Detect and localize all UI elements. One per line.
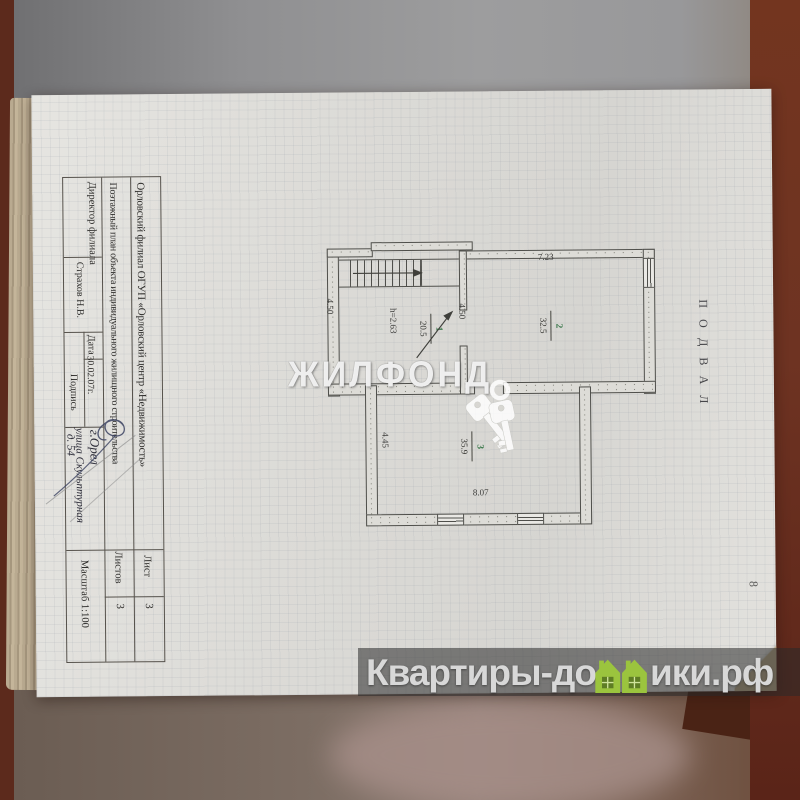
dim-room3-bottom: 8.07 <box>473 487 489 497</box>
wall-top-room2 <box>465 249 655 260</box>
page-number: 8 <box>746 581 761 587</box>
dim-room3-left: 4.45 <box>380 432 390 448</box>
room2-label: 32.5 2 <box>538 311 563 341</box>
staircase <box>339 259 459 288</box>
wall-divider-upper <box>459 250 468 310</box>
dim-room1-height: h=2.63 <box>388 308 398 333</box>
dim-room2-top: 7.23 <box>538 252 554 262</box>
window-room2-right <box>643 258 655 288</box>
stair-direction-arrow <box>349 266 429 281</box>
keys-watermark-icon <box>444 376 532 460</box>
wall-left-room3 <box>365 385 378 526</box>
table-blur-highlight <box>330 700 690 800</box>
window-room3-bottom-2 <box>517 513 544 525</box>
floor-name-label: ПОДВАЛ <box>695 299 711 449</box>
fraction-bar <box>550 311 551 341</box>
room2-area: 32.5 <box>538 318 548 334</box>
dim-room2-left: 4.50 <box>457 303 467 319</box>
logo-text-prefix: Квартиры-до <box>366 654 596 691</box>
wall-top-left <box>327 248 373 257</box>
logo-text-suffix: ики.рф <box>650 654 773 691</box>
dim-room1-left: 4.50 <box>325 299 335 315</box>
green-houses-icon <box>594 652 652 694</box>
site-logo-watermark: Квартиры-до ики.рф <box>358 648 800 696</box>
wall-bottom-room3 <box>366 512 592 526</box>
window-room3-bottom-1 <box>437 513 464 525</box>
room2-number: 2 <box>553 323 563 328</box>
wall-right-room3 <box>579 386 592 524</box>
photo-scene: Орловский филиал ОГУП «Орловский центр «… <box>0 0 800 800</box>
wall-top-stair <box>371 241 473 251</box>
